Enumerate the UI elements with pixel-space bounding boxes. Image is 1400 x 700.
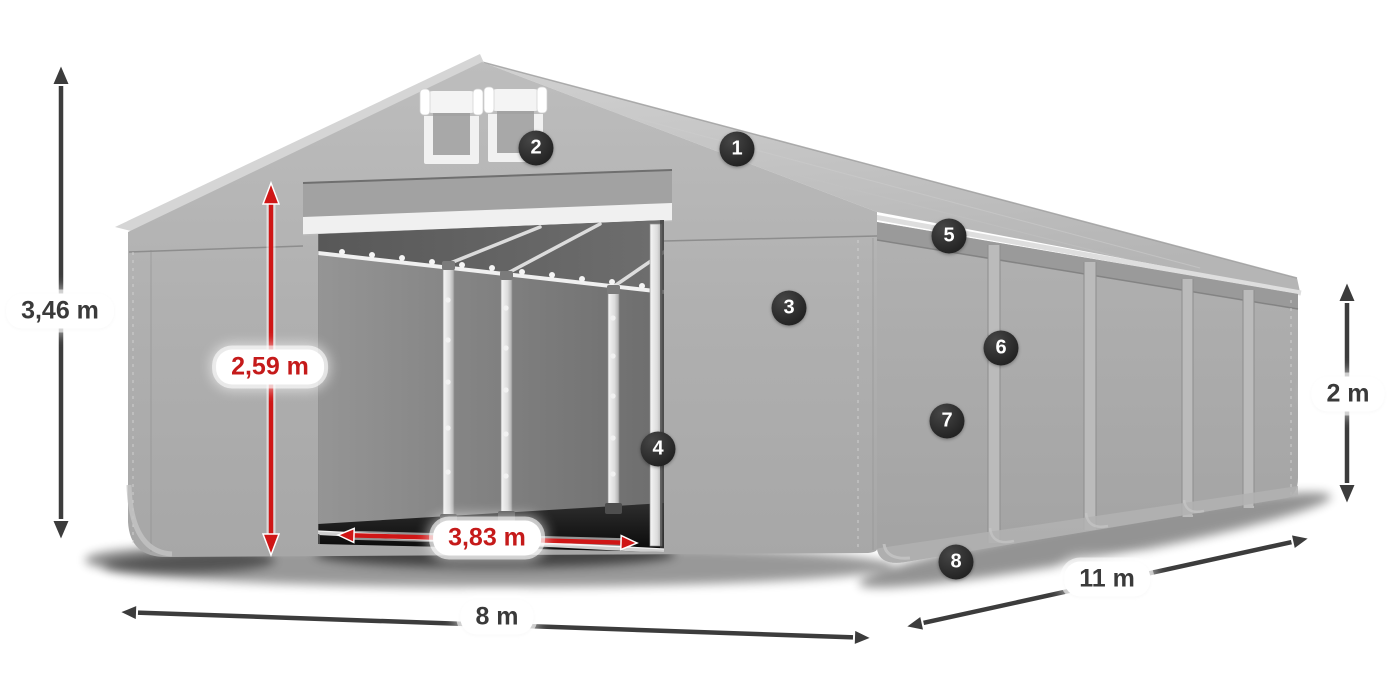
callout-badge-4[interactable]: 4 bbox=[641, 432, 676, 467]
callout-badge-7[interactable]: 7 bbox=[930, 404, 965, 439]
callout-badge-6[interactable]: 6 bbox=[984, 331, 1019, 366]
tent-door-opening bbox=[301, 218, 665, 552]
callout-badge-8[interactable]: 8 bbox=[939, 545, 974, 580]
tent-dimension-diagram: 3,46 m 2,59 m 3,83 m 8 m 11 m 2 m 1 2 3 … bbox=[0, 0, 1400, 700]
dimension-label-side-height: 2 m bbox=[1311, 377, 1384, 412]
tent-illustration bbox=[0, 0, 1400, 700]
roof-vent-left bbox=[420, 89, 483, 164]
callout-badge-5[interactable]: 5 bbox=[932, 219, 967, 254]
dimension-label-side-length: 11 m bbox=[1064, 562, 1150, 597]
dimension-label-total-height: 3,46 m bbox=[6, 294, 114, 329]
callout-badge-1[interactable]: 1 bbox=[720, 132, 755, 167]
callout-badge-2[interactable]: 2 bbox=[519, 131, 554, 166]
dimension-label-door-height: 2,59 m bbox=[216, 350, 324, 385]
dimension-label-door-width: 3,83 m bbox=[433, 521, 541, 556]
callout-badge-3[interactable]: 3 bbox=[772, 291, 807, 326]
dimension-label-front-width: 8 m bbox=[460, 600, 533, 635]
